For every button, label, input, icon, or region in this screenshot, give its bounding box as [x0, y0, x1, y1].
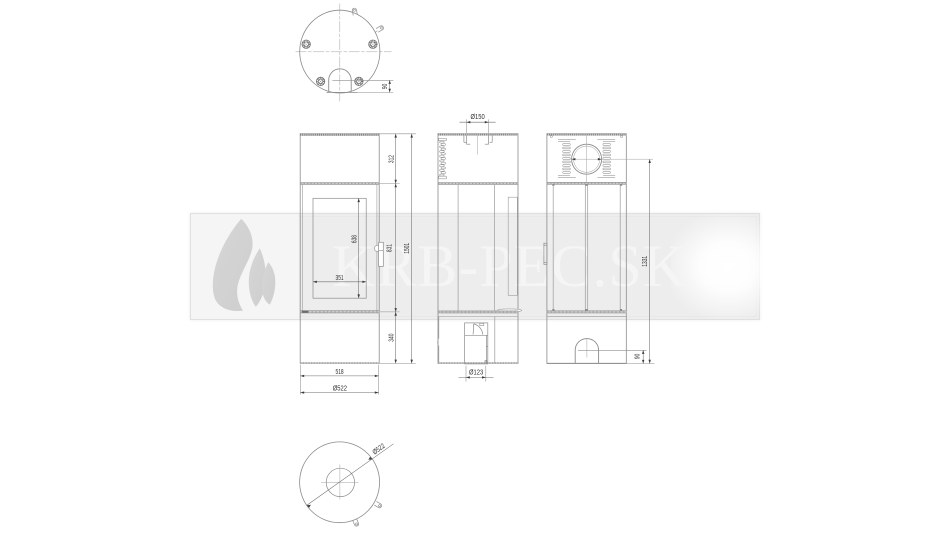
svg-text:340: 340 — [387, 334, 395, 342]
svg-text:Ø150: Ø150 — [471, 113, 485, 121]
svg-text:1331: 1331 — [641, 256, 649, 267]
svg-text:Ø123: Ø123 — [469, 369, 483, 377]
svg-text:312: 312 — [387, 155, 395, 163]
svg-text:Ø522: Ø522 — [333, 385, 347, 393]
svg-text:1501: 1501 — [403, 243, 411, 254]
svg-text:831: 831 — [386, 244, 394, 252]
svg-text:518: 518 — [336, 368, 344, 376]
svg-text:351: 351 — [336, 274, 344, 282]
svg-text:90: 90 — [381, 84, 389, 89]
svg-text:638: 638 — [351, 235, 359, 243]
svg-text:90: 90 — [633, 354, 641, 359]
